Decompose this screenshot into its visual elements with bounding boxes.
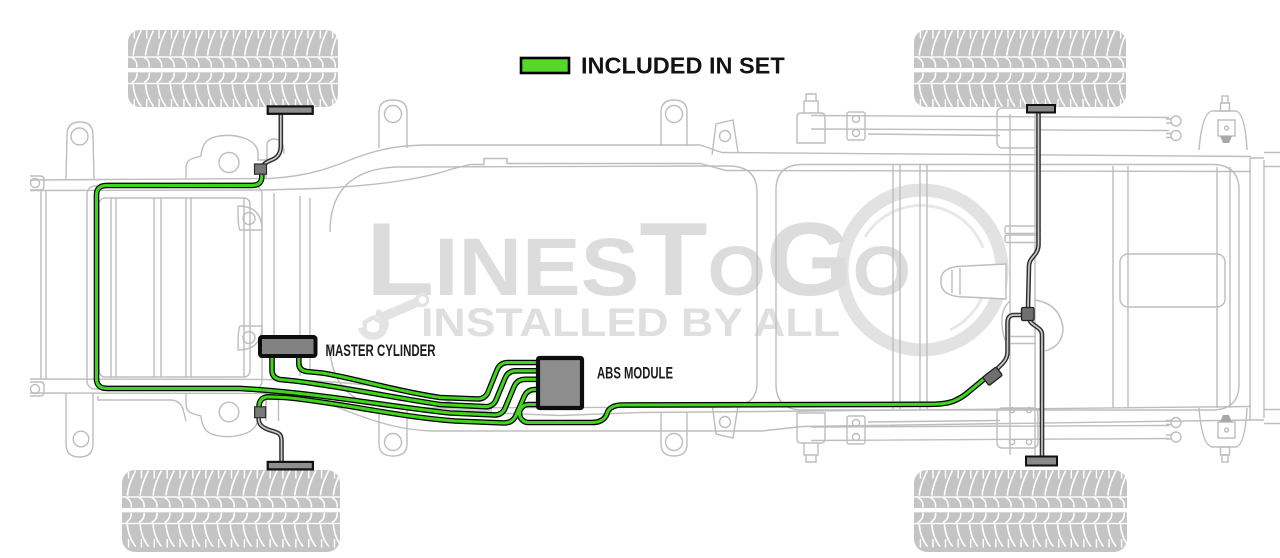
svg-text:MASTER CYLINDER: MASTER CYLINDER	[326, 342, 436, 360]
svg-text:INCLUDED IN SET: INCLUDED IN SET	[581, 53, 785, 79]
svg-text:ABS MODULE: ABS MODULE	[597, 365, 673, 383]
svg-text:INSTALLED BY ALL: INSTALLED BY ALL	[421, 301, 840, 345]
